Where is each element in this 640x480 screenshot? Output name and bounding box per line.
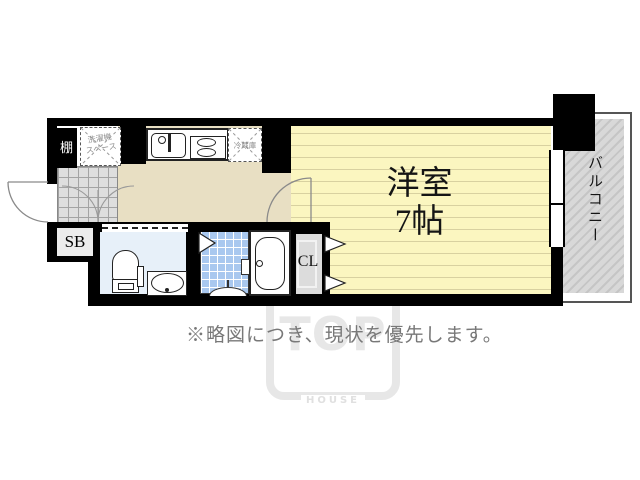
washer-cross-icon bbox=[81, 128, 120, 165]
room-label-line1: 洋室 bbox=[337, 165, 502, 203]
bath-door-triangle-icon bbox=[199, 233, 215, 253]
shoebox-label: SB bbox=[57, 228, 93, 256]
disclaimer-note: ※略図につき、現状を優先します。 bbox=[186, 320, 503, 347]
door-symbols-overlay bbox=[0, 0, 640, 480]
entrance-door-arc-icon bbox=[8, 182, 48, 222]
room-door-arc-icon bbox=[267, 178, 311, 222]
shelf-label: 棚 bbox=[56, 128, 77, 168]
room-label: 洋室 7帖 bbox=[337, 165, 502, 241]
closet-door-triangle-icon bbox=[325, 275, 345, 291]
closet-label: CL bbox=[294, 253, 322, 271]
genkan-door-arcs-icon bbox=[62, 186, 134, 222]
room-label-line2: 7帖 bbox=[337, 203, 502, 241]
floorplan-image: TOP HOUSE SB 冷蔵庫 洗濯機 スペース bbox=[0, 0, 640, 480]
fridge-cross-icon bbox=[229, 129, 261, 161]
balcony-label: バルコニー bbox=[584, 155, 605, 265]
